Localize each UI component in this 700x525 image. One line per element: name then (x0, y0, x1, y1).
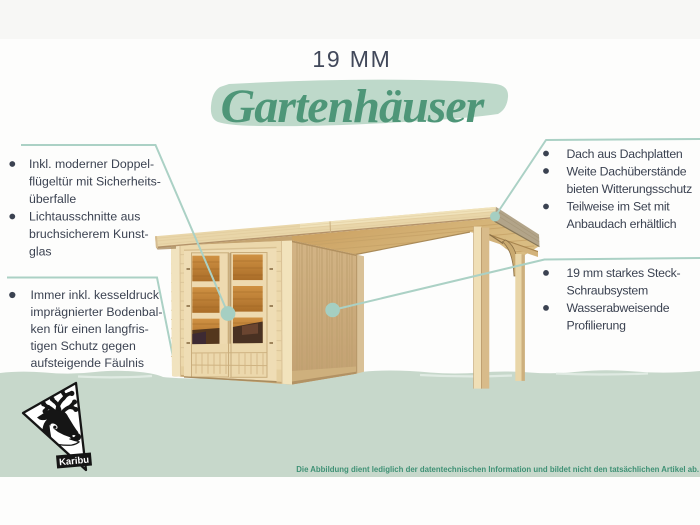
svg-text:tigen Schutz gegen: tigen Schutz gegen (31, 339, 136, 353)
svg-text:Anbaudach erhältlich: Anbaudach erhältlich (567, 217, 677, 231)
svg-text:Die Abbildung dient lediglich: Die Abbildung dient lediglich der datent… (296, 465, 699, 474)
svg-text:bieten Witterungsschutz: bieten Witterungsschutz (567, 182, 693, 196)
svg-text:aufsteigende Fäulnis: aufsteigende Fäulnis (31, 356, 144, 370)
svg-text:Lichtausschnitte aus: Lichtausschnitte aus (29, 210, 140, 224)
svg-text:überfalle: überfalle (29, 192, 76, 206)
svg-text:bruchsicherem Kunst-: bruchsicherem Kunst- (29, 227, 149, 241)
svg-text:imprägnierter Bodenbal-: imprägnierter Bodenbal- (31, 305, 163, 319)
svg-text:Weite Dachüberstände: Weite Dachüberstände (567, 165, 687, 179)
svg-text:Schraubsystem: Schraubsystem (567, 284, 649, 298)
svg-text:Wasserabweisende: Wasserabweisende (567, 301, 670, 315)
svg-text:ken für einen langfris-: ken für einen langfris- (31, 322, 149, 336)
svg-text:19 MM: 19 MM (312, 46, 391, 72)
svg-text:Immer inkl. kesseldruck: Immer inkl. kesseldruck (31, 288, 160, 302)
svg-text:Teilweise im Set mit: Teilweise im Set mit (567, 200, 671, 214)
svg-text:19 mm starkes Steck-: 19 mm starkes Steck- (567, 266, 681, 280)
svg-text:glas: glas (29, 245, 52, 259)
svg-text:Profilierung: Profilierung (567, 319, 627, 333)
svg-text:Gartenhäuser: Gartenhäuser (221, 80, 486, 133)
svg-text:flügeltür mit Sicherheits-: flügeltür mit Sicherheits- (29, 175, 161, 189)
svg-text:Inkl. moderner Doppel-: Inkl. moderner Doppel- (29, 157, 154, 171)
svg-text:Dach aus Dachplatten: Dach aus Dachplatten (567, 147, 683, 161)
